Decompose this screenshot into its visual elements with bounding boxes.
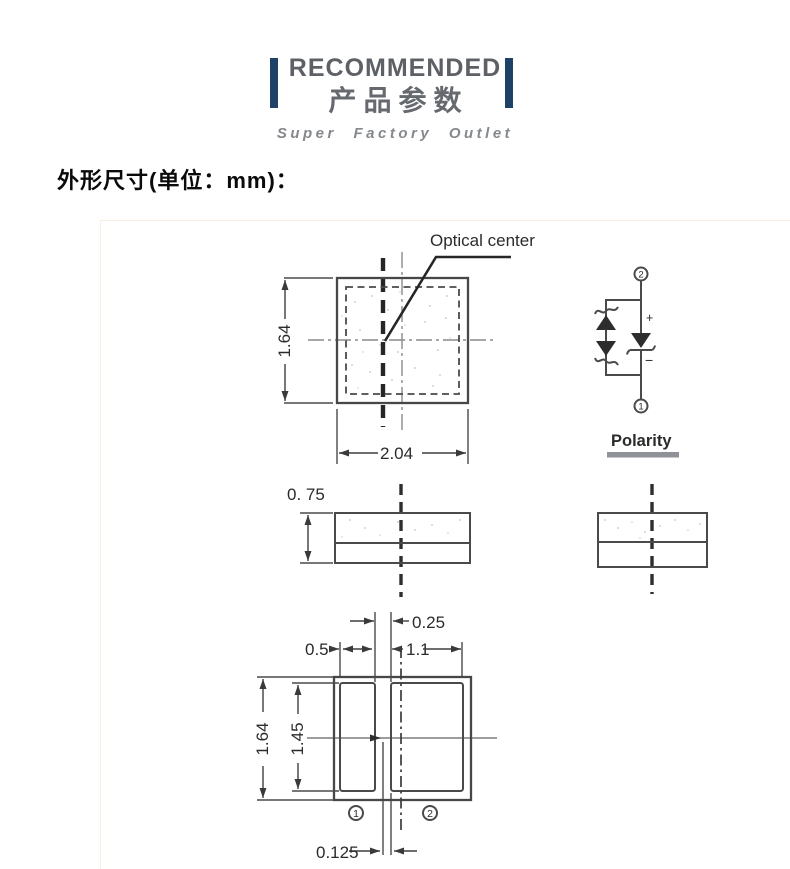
dim-top-width: 2.04 — [380, 444, 413, 463]
speckle-dot — [631, 521, 632, 522]
optical-center-label: Optical center — [430, 231, 535, 250]
speckle-dot — [362, 351, 363, 352]
speckle-dot — [364, 527, 366, 529]
speckle-dot — [432, 385, 434, 387]
speckle-dot — [437, 349, 439, 351]
speckle-dot — [459, 519, 461, 521]
pad-1-number: 1 — [353, 808, 359, 820]
minus-sign: − — [645, 352, 653, 368]
speckle-dot — [359, 329, 361, 331]
speckle-dot — [445, 317, 447, 319]
pad-2-number: 2 — [427, 808, 433, 820]
speckle-dot — [617, 527, 619, 529]
plus-sign: + — [646, 311, 653, 325]
speckle-dot — [357, 387, 358, 388]
polarity-label: Polarity — [611, 432, 672, 450]
speckle-dot — [387, 309, 389, 311]
speckle-dot — [659, 525, 661, 527]
speckle-dot — [644, 531, 646, 533]
pad-1 — [340, 683, 375, 791]
top-view: Optical center 1.64 2.04 — [275, 231, 535, 464]
speckle-dot — [391, 379, 393, 381]
product-parameter-page: RECOMMENDED 产品参数 Super Factory Outlet 外形… — [0, 0, 790, 869]
speckle-dot — [349, 519, 351, 521]
speckle-dot — [604, 519, 606, 521]
speckle-dot — [424, 321, 426, 323]
dim-top-height: 1.64 — [275, 324, 294, 357]
dimension-drawing: Optical center 1.64 2.04 2 1 + — [0, 0, 790, 869]
zener-down-symbol — [596, 341, 616, 356]
dim-gap: 0.25 — [412, 613, 445, 632]
speckle-dot — [371, 295, 373, 297]
polarity-underline — [607, 452, 679, 458]
pad-layout-view: 0.25 0.5 1.1 1.64 1.45 — [253, 612, 497, 862]
speckle-dot — [439, 374, 441, 376]
dim-center-offset: 0.125 — [316, 843, 359, 862]
speckle-dot — [674, 519, 676, 521]
polarity-schematic: 2 1 + − Polarity — [595, 268, 679, 458]
terminal-2-label: 2 — [638, 270, 643, 281]
speckle-dot — [354, 301, 356, 303]
speckle-dot — [639, 537, 640, 538]
dim-thickness: 0. 75 — [287, 485, 325, 504]
speckle-dot — [379, 534, 380, 535]
speckle-dot — [414, 367, 416, 369]
speckle-dot — [379, 344, 380, 345]
speckle-dot — [397, 351, 399, 353]
speckle-dot — [404, 324, 405, 325]
led-diode-symbol — [631, 333, 651, 348]
speckle-dot — [446, 295, 448, 297]
speckle-dot — [429, 305, 431, 307]
speckle-dot — [431, 524, 433, 526]
side-view-front: 0. 75 — [287, 484, 470, 597]
speckle-dot — [687, 529, 688, 530]
speckle-dot — [699, 523, 701, 525]
speckle-dot — [351, 364, 353, 366]
speckle-dot — [397, 521, 399, 523]
zener-up-symbol — [596, 315, 616, 330]
speckle-dot — [399, 291, 400, 292]
speckle-dot — [341, 536, 342, 537]
optical-center-leader — [385, 257, 511, 341]
speckle-dot — [341, 315, 342, 316]
dim-pad-height: 1.45 — [288, 722, 307, 755]
side-view-end — [598, 484, 707, 594]
speckle-dot — [447, 532, 448, 533]
speckle-dot — [449, 337, 450, 338]
terminal-1-label: 1 — [638, 402, 643, 413]
speckle-dot — [414, 529, 416, 531]
dim-pad1-width: 0.5 — [305, 640, 329, 659]
dim-bottom-height: 1.64 — [253, 722, 272, 755]
speckle-dot — [369, 371, 371, 373]
